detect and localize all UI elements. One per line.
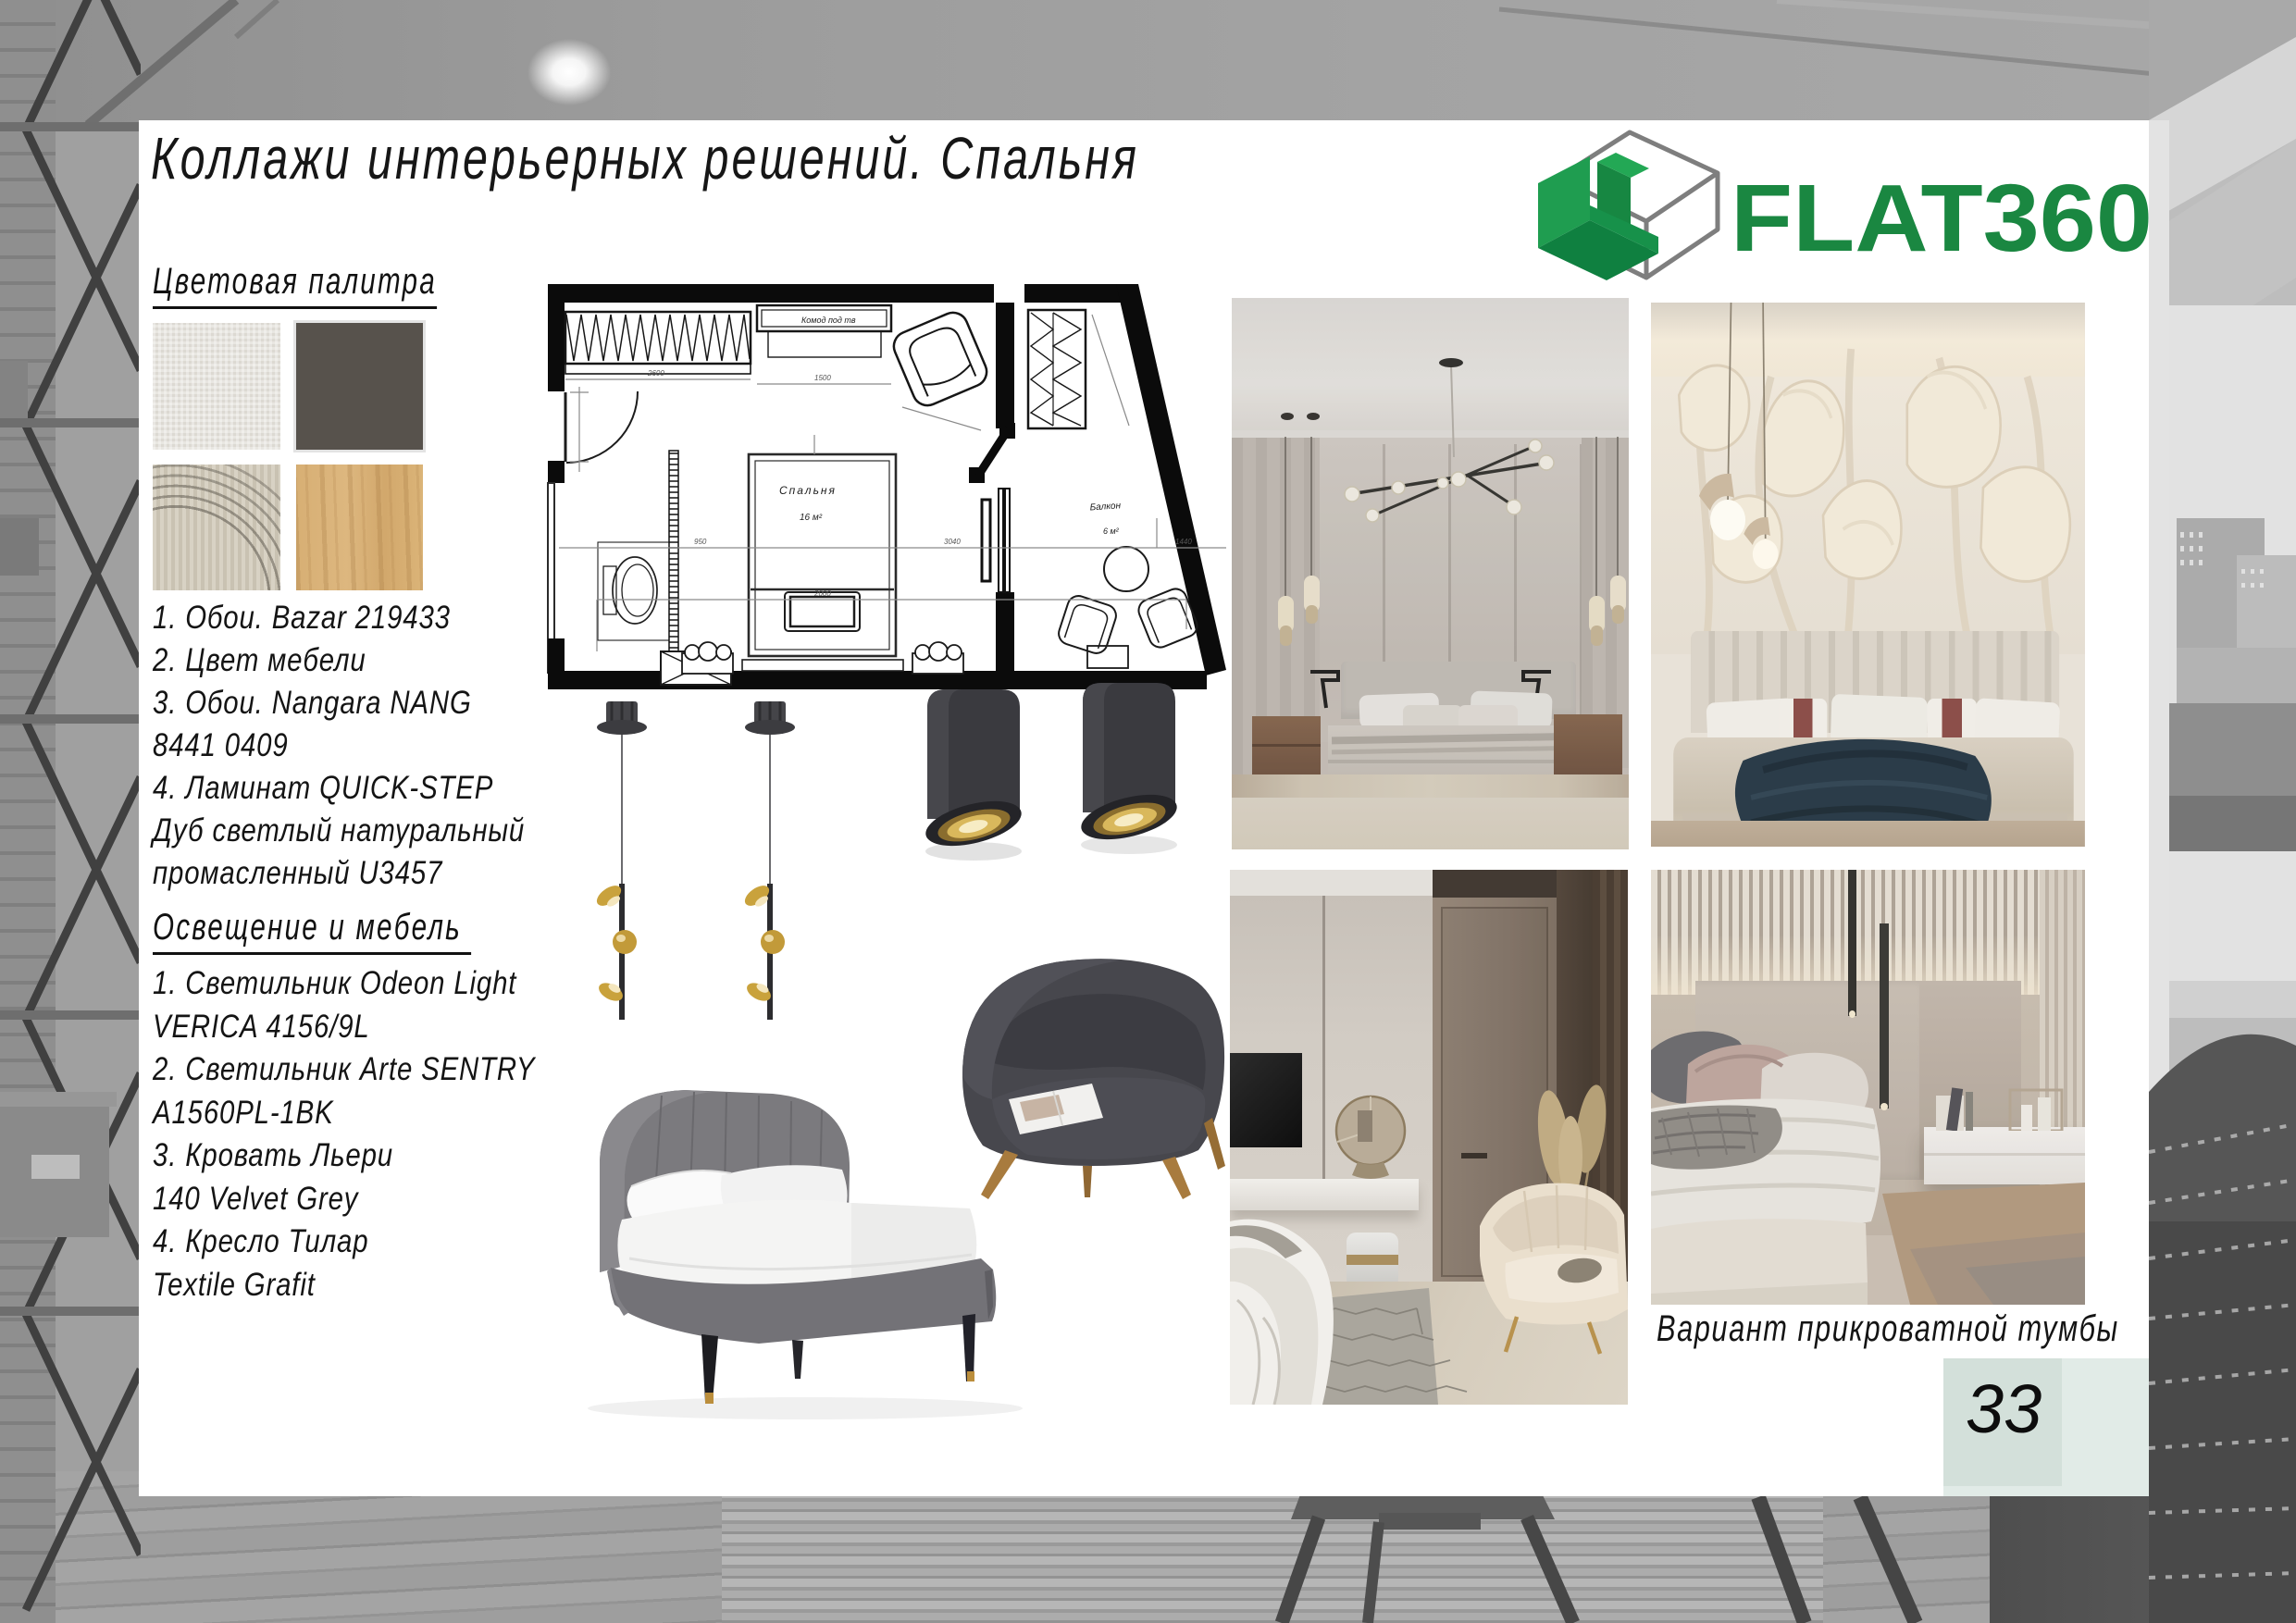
svg-text:950: 950 — [694, 538, 707, 546]
svg-text:1500: 1500 — [814, 374, 831, 382]
svg-text:Комод под тв: Комод под тв — [801, 316, 856, 325]
svg-text:2600: 2600 — [647, 369, 664, 378]
svg-text:1440: 1440 — [1175, 538, 1192, 546]
svg-text:Спальня: Спальня — [779, 484, 837, 497]
svg-text:FLAT360: FLAT360 — [1731, 165, 2153, 271]
svg-text:6 м²: 6 м² — [1103, 527, 1120, 536]
svg-text:16 м²: 16 м² — [800, 513, 823, 523]
svg-text:2000: 2000 — [813, 589, 831, 598]
svg-text:Балкон: Балкон — [1089, 501, 1122, 513]
svg-text:3040: 3040 — [944, 538, 961, 546]
